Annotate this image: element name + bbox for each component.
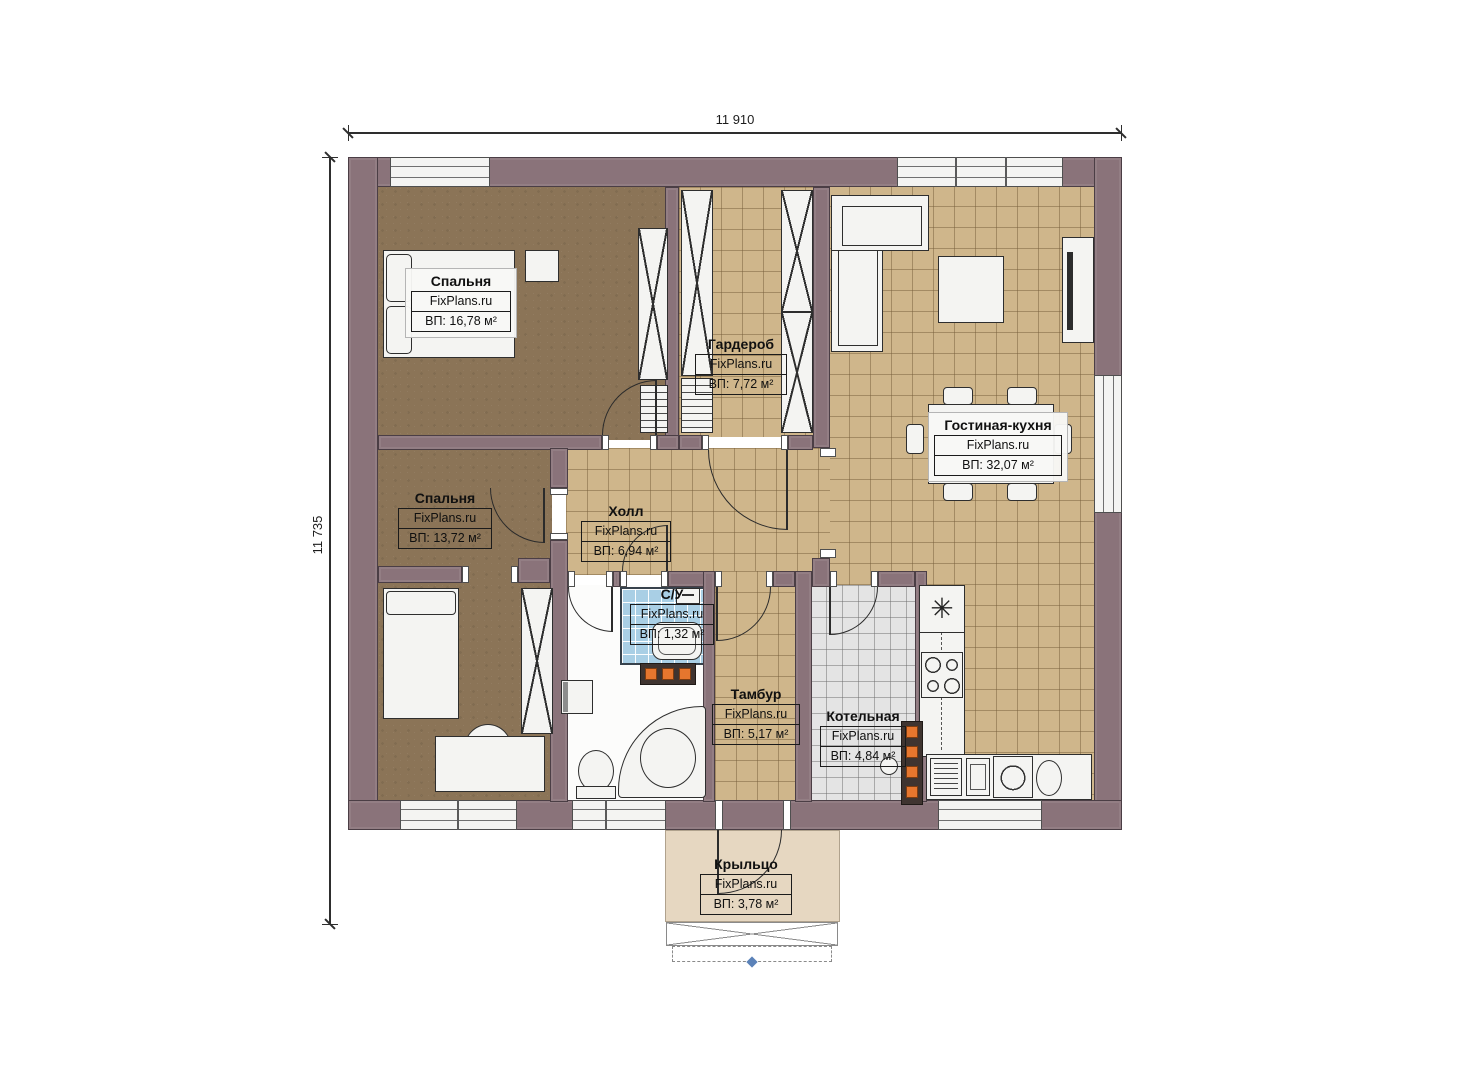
wall-hall-boiler-stub bbox=[812, 558, 830, 587]
left-dimension-line bbox=[329, 157, 331, 925]
jamb bbox=[620, 571, 627, 587]
watermark: FixPlans.ru bbox=[412, 292, 510, 311]
jamb bbox=[781, 435, 788, 450]
radiator-segment bbox=[679, 668, 691, 680]
left-dimension-label: 11 735 bbox=[310, 505, 326, 565]
room-label-bedroom-2: Спальня FixPlans.ru ВП: 13,72 м² bbox=[398, 490, 492, 549]
jamb bbox=[766, 571, 773, 587]
appliance-door bbox=[970, 764, 986, 790]
sofa-cushion bbox=[838, 250, 878, 346]
wall-wardrobe-bottom-left bbox=[679, 435, 702, 450]
jamb bbox=[702, 435, 709, 450]
room-area: ВП: 6,94 м² bbox=[582, 541, 670, 561]
coffee-table bbox=[938, 256, 1004, 323]
watermark: FixPlans.ru bbox=[399, 509, 491, 528]
jamb bbox=[462, 566, 469, 583]
jamb bbox=[568, 571, 575, 587]
wall-bedroom2-right-upper bbox=[550, 448, 568, 488]
room-title: Гостиная-кухня bbox=[934, 417, 1062, 433]
jamb bbox=[830, 571, 837, 587]
room-title: Крыльцо bbox=[700, 856, 792, 872]
wall-exterior-left bbox=[348, 157, 378, 830]
jamb bbox=[715, 800, 723, 830]
top-dimension-line bbox=[348, 132, 1122, 134]
door-leaf bbox=[611, 587, 613, 632]
room-info-box: FixPlans.ru ВП: 4,84 м² bbox=[820, 726, 906, 767]
room-info-box: FixPlans.ru ВП: 13,72 м² bbox=[398, 508, 492, 549]
nightstand bbox=[525, 250, 559, 282]
room-title: Холл bbox=[581, 503, 671, 519]
tv-screen bbox=[1067, 252, 1073, 330]
room-area: ВП: 13,72 м² bbox=[399, 528, 491, 548]
room-label-vestibule: Тамбур FixPlans.ru ВП: 5,17 м² bbox=[712, 686, 800, 745]
bathtub-basin bbox=[640, 728, 696, 788]
room-info-box: FixPlans.ru ВП: 6,94 м² bbox=[581, 521, 671, 562]
floor-plan: 11 910 11 735 bbox=[0, 0, 1473, 1080]
toilet-tank bbox=[576, 786, 616, 799]
dining-chair bbox=[943, 483, 973, 501]
room-info-box: FixPlans.ru ВП: 7,72 м² bbox=[695, 354, 787, 395]
window-living-mullion-2 bbox=[1005, 157, 1007, 187]
vent-icon: ✳ bbox=[919, 585, 965, 633]
sofa-cushion bbox=[842, 206, 922, 246]
jamb bbox=[661, 571, 668, 587]
door-leaf bbox=[786, 450, 788, 530]
room-label-boiler-room: Котельная FixPlans.ru ВП: 4,84 м² bbox=[820, 708, 906, 767]
porch-step-1 bbox=[666, 922, 838, 946]
opening-jamb-living-bottom bbox=[820, 549, 836, 558]
room-title: Спальня bbox=[398, 490, 492, 506]
window-kitchen bbox=[938, 800, 1042, 830]
watermark: FixPlans.ru bbox=[582, 522, 670, 541]
jamb bbox=[550, 488, 568, 495]
stove-cooktop bbox=[921, 652, 963, 698]
door-leaf bbox=[716, 587, 718, 641]
closet-bedroom3 bbox=[521, 588, 553, 734]
dining-chair bbox=[1007, 387, 1037, 405]
jamb bbox=[602, 435, 609, 450]
jamb bbox=[783, 800, 791, 830]
window-bathroom bbox=[572, 800, 666, 830]
sink-basin bbox=[1036, 760, 1062, 796]
watermark: FixPlans.ru bbox=[696, 355, 786, 374]
radiator-segment bbox=[906, 786, 918, 798]
wall-wardrobe-living bbox=[813, 187, 830, 448]
jamb bbox=[550, 533, 568, 540]
wall-boiler-top-right bbox=[878, 571, 915, 587]
washing-machine-panel bbox=[563, 682, 568, 712]
room-label-wc: С/У FixPlans.ru ВП: 1,32 м² bbox=[630, 586, 714, 645]
window-bedroom1 bbox=[390, 157, 490, 187]
door-leaf bbox=[655, 380, 657, 435]
jamb bbox=[871, 571, 878, 587]
radiator-segment bbox=[662, 668, 674, 680]
room-title: Тамбур bbox=[712, 686, 800, 702]
room-info-box: FixPlans.ru ВП: 1,32 м² bbox=[630, 604, 714, 645]
watermark: FixPlans.ru bbox=[713, 705, 799, 724]
window-living-mullion-1 bbox=[955, 157, 957, 187]
room-area: ВП: 3,78 м² bbox=[701, 894, 791, 914]
wardrobe-cabinet-right-upper bbox=[781, 190, 813, 312]
room-area: ВП: 32,07 м² bbox=[935, 455, 1061, 475]
dining-chair bbox=[906, 424, 924, 454]
dishwasher bbox=[930, 758, 962, 796]
radiator-segment bbox=[906, 766, 918, 778]
jamb bbox=[650, 435, 657, 450]
dining-chair bbox=[1007, 483, 1037, 501]
closet-bedroom1 bbox=[638, 228, 668, 380]
wall-hall-vestibule bbox=[773, 571, 795, 587]
dining-chair bbox=[943, 387, 973, 405]
wall-bedroom1-bottom bbox=[378, 435, 602, 450]
room-area: ВП: 16,78 м² bbox=[412, 311, 510, 331]
jamb bbox=[511, 566, 518, 583]
window-living-right bbox=[1094, 375, 1122, 513]
room-label-wardrobe: Гардероб FixPlans.ru ВП: 7,72 м² bbox=[695, 336, 787, 395]
top-dimension-label: 11 910 bbox=[685, 112, 785, 128]
wall-wardrobe-bottom-right bbox=[788, 435, 813, 450]
room-info-box: FixPlans.ru ВП: 16,78 м² bbox=[411, 291, 511, 332]
room-area: ВП: 1,32 м² bbox=[631, 624, 713, 644]
room-info-box: FixPlans.ru ВП: 32,07 м² bbox=[934, 435, 1062, 476]
watermark: FixPlans.ru bbox=[821, 727, 905, 746]
room-area: ВП: 7,72 м² bbox=[696, 374, 786, 394]
door-leaf bbox=[543, 488, 545, 543]
room-title: С/У bbox=[630, 586, 714, 602]
room-info-box: FixPlans.ru ВП: 3,78 м² bbox=[700, 874, 792, 915]
room-area: ВП: 4,84 м² bbox=[821, 746, 905, 766]
window-bathroom-mullion bbox=[605, 800, 607, 830]
room-label-porch: Крыльцо FixPlans.ru ВП: 3,78 м² bbox=[700, 856, 792, 915]
watermark: FixPlans.ru bbox=[701, 875, 791, 894]
radiator-segment bbox=[645, 668, 657, 680]
desk bbox=[435, 736, 545, 792]
watermark: FixPlans.ru bbox=[631, 605, 713, 624]
radiator-segment bbox=[906, 746, 918, 758]
room-label-living-kitchen: Гостиная-кухня FixPlans.ru ВП: 32,07 м² bbox=[928, 412, 1068, 482]
wall-bedroom1-bottom-right bbox=[657, 435, 679, 450]
watermark: FixPlans.ru bbox=[935, 436, 1061, 455]
room-title: Спальня bbox=[411, 273, 511, 289]
room-title: Гардероб bbox=[695, 336, 787, 352]
window-living bbox=[897, 157, 1063, 187]
radiator-segment bbox=[906, 726, 918, 738]
jamb bbox=[606, 571, 613, 587]
room-info-box: FixPlans.ru ВП: 5,17 м² bbox=[712, 704, 800, 745]
wall-bedroom3-corner bbox=[518, 558, 550, 583]
room-label-bedroom-1: Спальня FixPlans.ru ВП: 16,78 м² bbox=[405, 268, 517, 338]
room-area: ВП: 5,17 м² bbox=[713, 724, 799, 744]
opening-jamb-living-top bbox=[820, 448, 836, 457]
kitchen-sink bbox=[993, 756, 1033, 798]
pillow bbox=[386, 591, 456, 615]
jamb bbox=[715, 571, 722, 587]
room-label-hall: Холл FixPlans.ru ВП: 6,94 м² bbox=[581, 503, 671, 562]
room-title: Котельная bbox=[820, 708, 906, 724]
door-leaf bbox=[829, 587, 831, 635]
wall-bedroom2-bedroom3 bbox=[378, 566, 462, 583]
window-bedroom3-mullion bbox=[457, 800, 459, 830]
wall-hall-bath-a bbox=[613, 571, 620, 587]
